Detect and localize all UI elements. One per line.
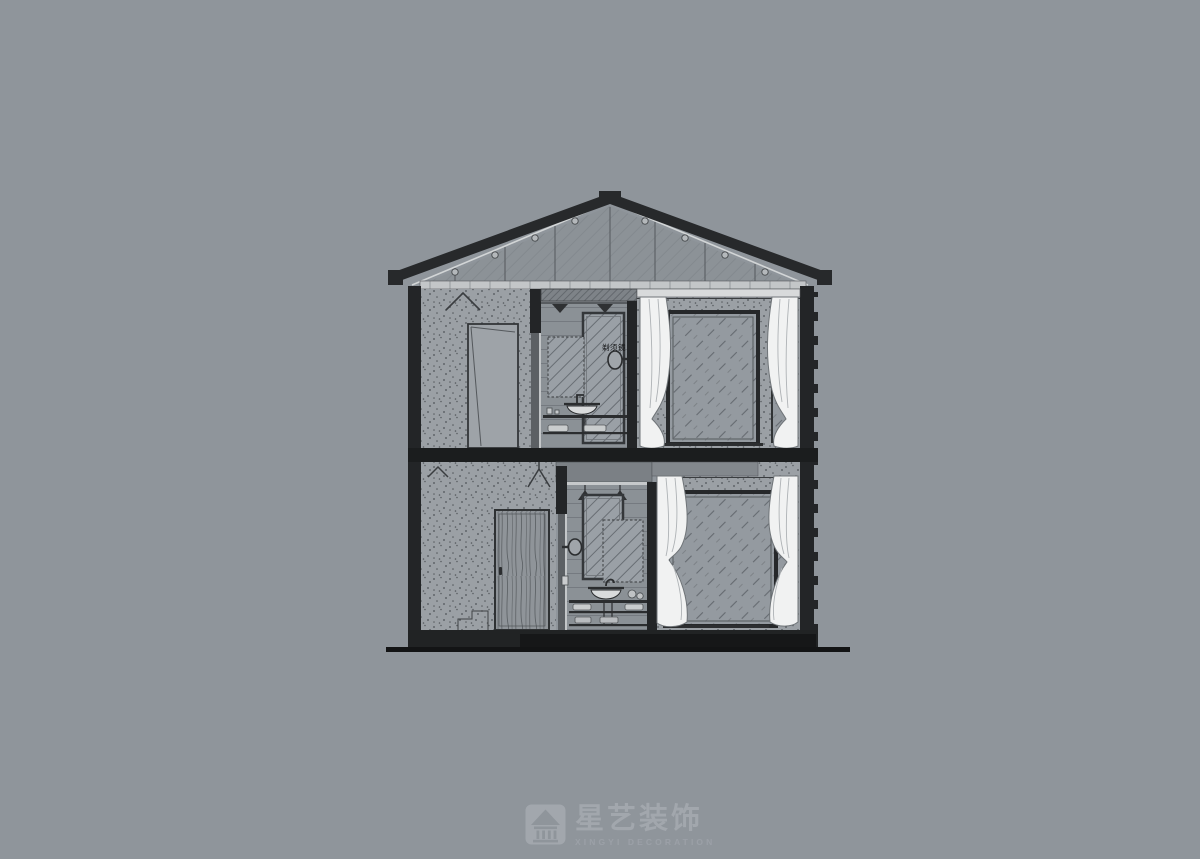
ground-line: [386, 647, 850, 652]
watermark-text: 星艺装饰 XINGYI DECORATION: [575, 804, 715, 847]
brand-name-cn: 星艺装饰: [575, 804, 715, 834]
lower-counter: [569, 600, 647, 603]
lower-partition: [558, 514, 565, 633]
shaving-mirror-label: 剃须镜: [602, 342, 626, 352]
lower-floor: [421, 462, 800, 633]
upper-bedroom: [637, 289, 800, 448]
ridge-cap: [599, 191, 621, 201]
lower-shelf: [569, 611, 647, 613]
lower-bottom-shelf: [569, 624, 647, 626]
roof-gable: [388, 191, 832, 289]
upper-partition-edge: [539, 333, 541, 448]
upper-floor: 剃须镜: [421, 289, 800, 448]
eaves-ceiling-strip: [420, 281, 806, 289]
lower-curtain-box: [652, 462, 758, 476]
lower-wood-door: [495, 510, 549, 630]
lower-bath-front-mirror: [603, 520, 643, 582]
ground-slab-core: [520, 634, 816, 647]
page-canvas: 剃须镜: [0, 0, 1200, 859]
upper-bath-bulkhead: [541, 289, 637, 301]
pavilion-logo-icon: [525, 804, 566, 845]
upper-window-sill: [663, 443, 763, 446]
upper-curtain-pelmet: [637, 289, 800, 297]
lower-partition-header: [556, 466, 567, 514]
section-drawing: 剃须镜: [0, 0, 1200, 859]
watermark: 星艺装饰 XINGYI DECORATION: [525, 804, 715, 847]
upper-shelf: [543, 432, 627, 434]
base: [386, 630, 850, 652]
upper-bathroom: 剃须镜: [541, 289, 637, 448]
soap-dispenser: [562, 576, 568, 585]
lower-bedroom: [652, 462, 800, 633]
lower-bath-bulkhead: [556, 462, 652, 482]
door-handle: [499, 567, 502, 575]
brand-name-en: XINGYI DECORATION: [575, 837, 715, 847]
lower-partition-d: [647, 482, 657, 633]
mid-floor-slab: [408, 448, 818, 462]
upper-partition-b: [627, 301, 637, 448]
upper-partition-header: [530, 289, 541, 333]
upper-picture-window: [668, 312, 758, 444]
upper-bath-tall-mirror: [583, 313, 624, 443]
upper-door: [468, 324, 518, 448]
lower-bath-ceiling-strip: [567, 482, 647, 485]
upper-partition: [531, 333, 539, 448]
left-eave-tip: [388, 270, 403, 285]
upper-counter: [543, 415, 627, 418]
lower-bathroom: [562, 482, 647, 633]
lower-partition-edge: [565, 514, 567, 633]
upper-bath-front-mirror: [548, 337, 584, 397]
right-eave-tip: [817, 270, 832, 285]
